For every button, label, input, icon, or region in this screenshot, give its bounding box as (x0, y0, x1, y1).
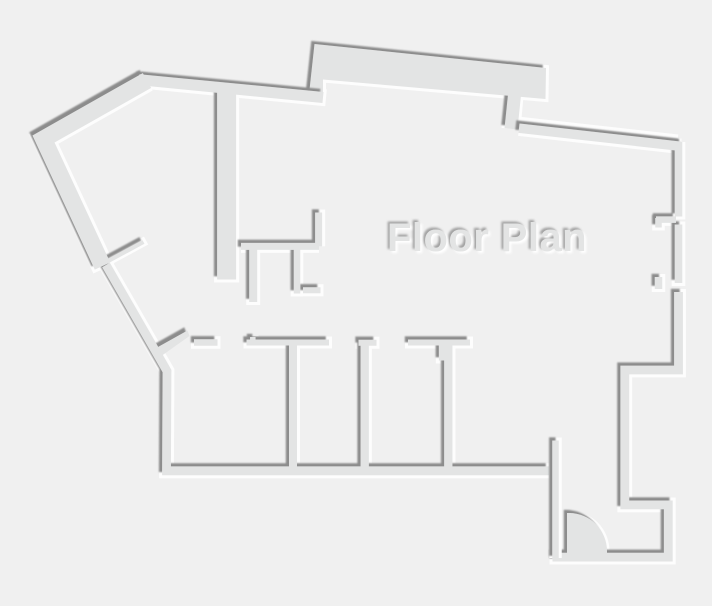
svg-text:Floor Plan: Floor Plan (387, 216, 587, 260)
